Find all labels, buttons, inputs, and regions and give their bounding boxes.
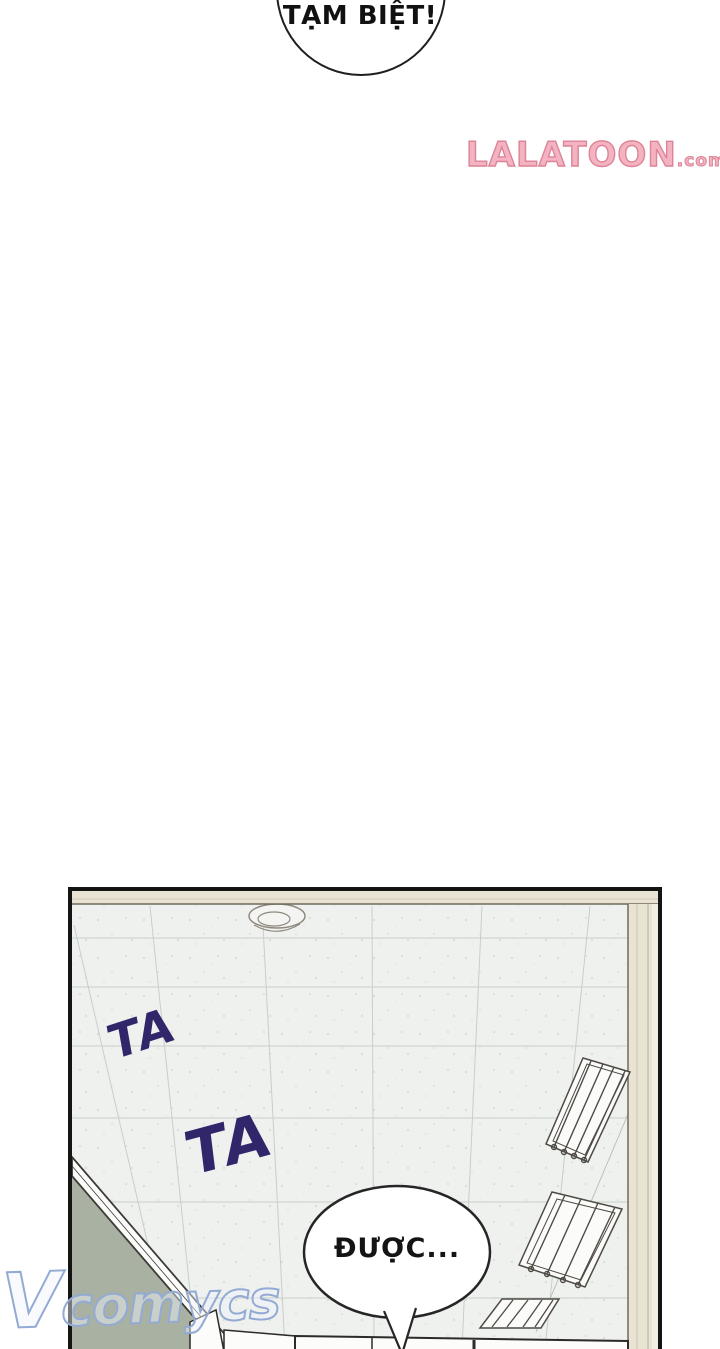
watermark-vcomycs: Vcomycs (1, 1247, 281, 1346)
watermark-vcomycs-initial: V (1, 1255, 63, 1346)
watermark-lalatoon: LALATOON.com (466, 135, 720, 175)
wall-column (628, 904, 658, 1349)
watermark-lalatoon-name: LALATOON (466, 135, 677, 175)
watermark-vcomycs-rest: comycs (60, 1268, 281, 1339)
comic-page: TẠM BIỆT! LALATOON.com (0, 0, 720, 1349)
watermark-lalatoon-suffix: .com (677, 151, 720, 171)
speech-text-main: ĐƯỢC... (317, 1233, 477, 1264)
ceiling-beam (72, 891, 658, 904)
speech-text-top: TẠM BIỆT! (275, 1, 445, 31)
